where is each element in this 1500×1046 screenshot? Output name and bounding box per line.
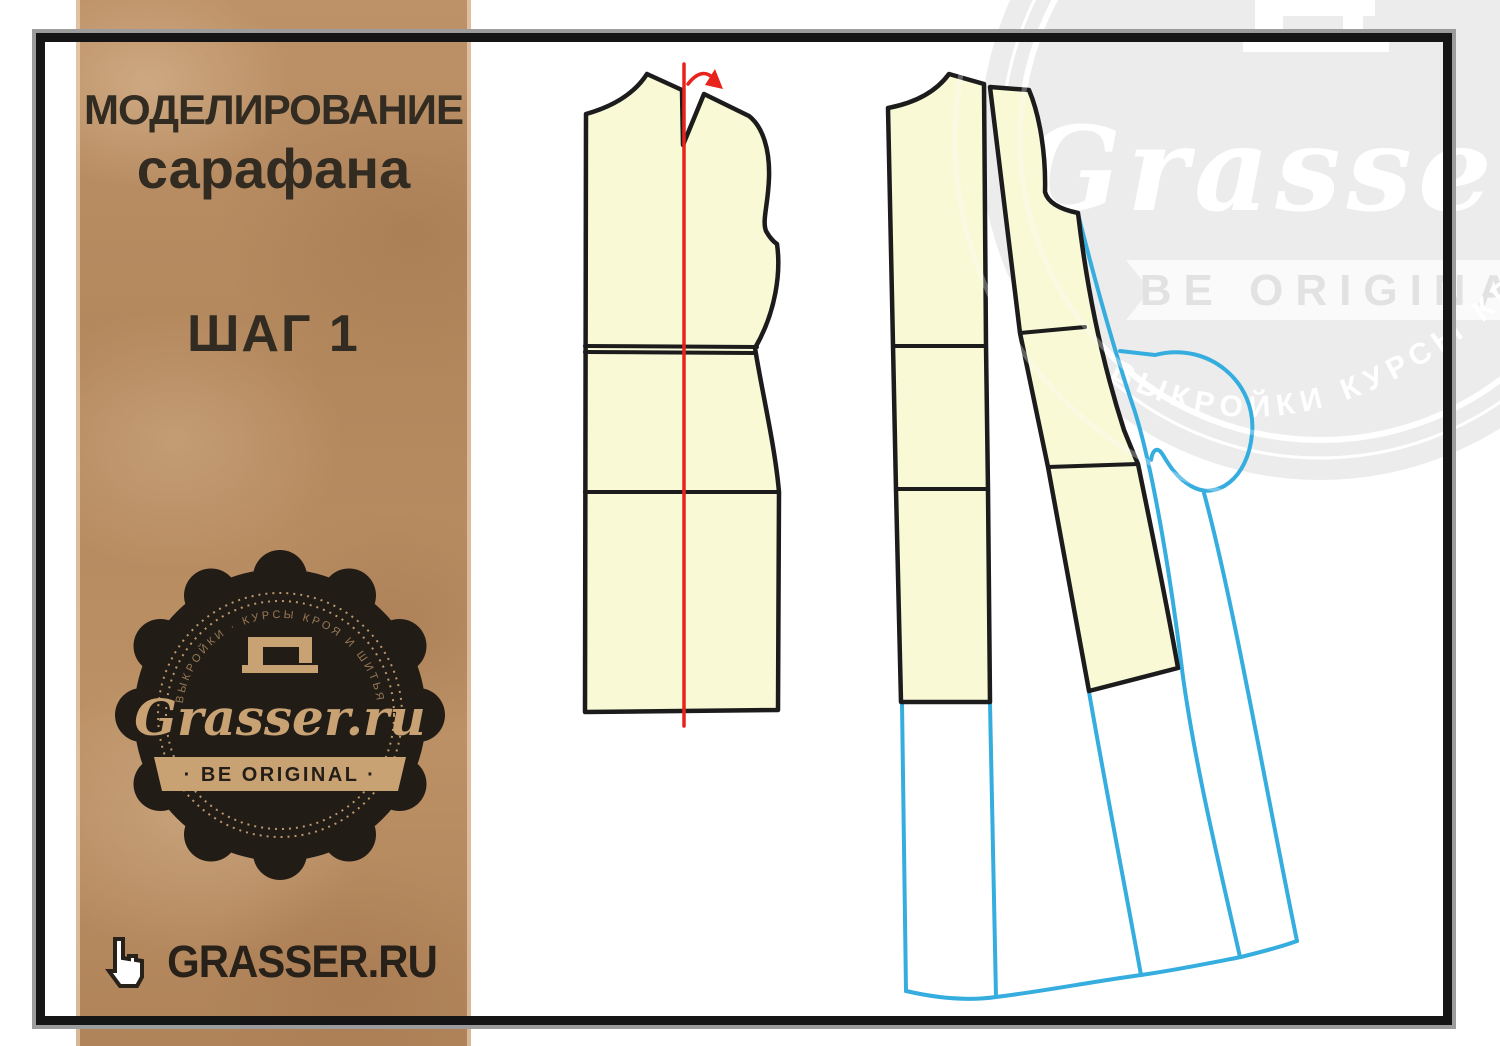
instruction-card: Grasser. BE ORIGINAL ВЫКРОЙКИ КУРСЫ КРОЯ… — [0, 0, 1500, 1046]
dart-rotation-arrow — [688, 69, 723, 89]
waist-line-upper — [585, 346, 757, 347]
skirt-line-3 — [1089, 692, 1141, 975]
original-pattern-piece — [585, 64, 779, 726]
skirt-line-1 — [902, 703, 906, 991]
waist-line-lower — [585, 352, 753, 353]
original-piece-outline — [585, 74, 779, 712]
flare-line-outer — [1204, 493, 1297, 941]
modeled-pattern — [888, 74, 1297, 999]
pattern-diagrams — [0, 0, 1500, 1046]
skirt-line-2 — [990, 703, 996, 997]
modeled-center-panel — [888, 74, 990, 702]
